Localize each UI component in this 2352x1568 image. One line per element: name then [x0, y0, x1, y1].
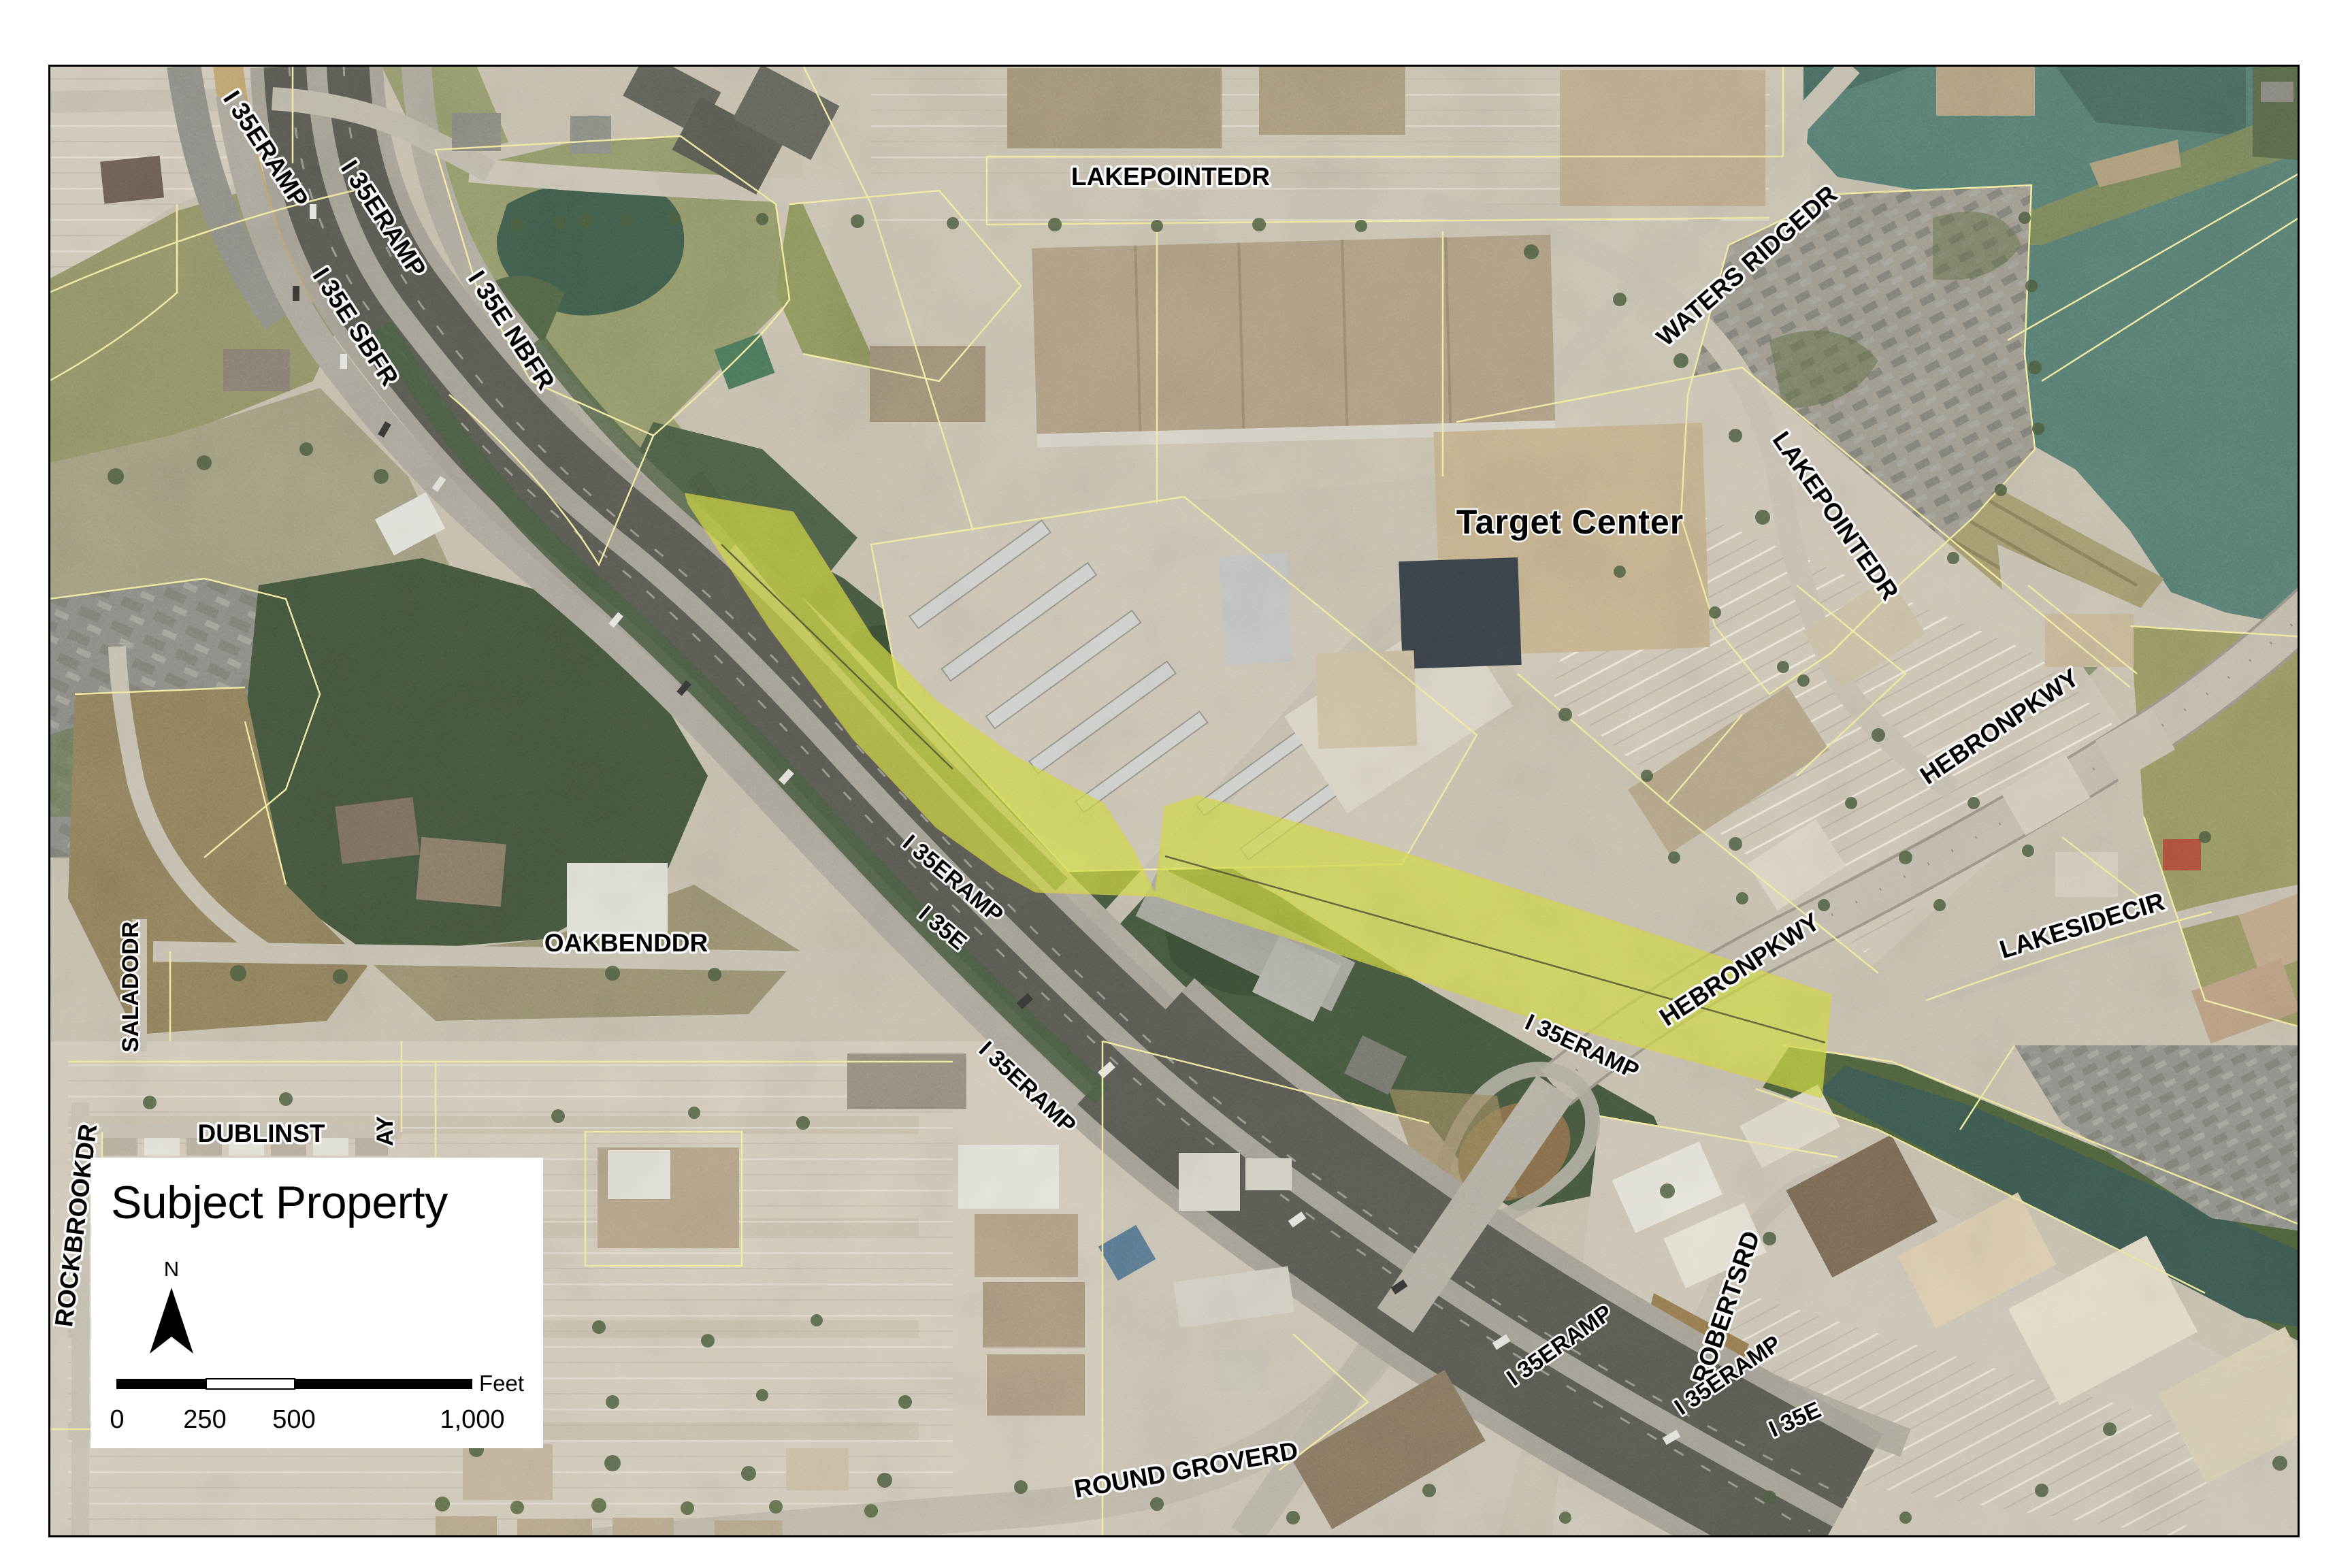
svg-text:N: N	[164, 1257, 179, 1281]
svg-text:Subject Property: Subject Property	[111, 1177, 448, 1228]
svg-text:0: 0	[110, 1405, 124, 1434]
svg-text:1,000: 1,000	[440, 1405, 504, 1434]
svg-text:500: 500	[272, 1405, 315, 1434]
svg-text:Feet: Feet	[479, 1371, 524, 1396]
svg-text:250: 250	[183, 1405, 226, 1434]
